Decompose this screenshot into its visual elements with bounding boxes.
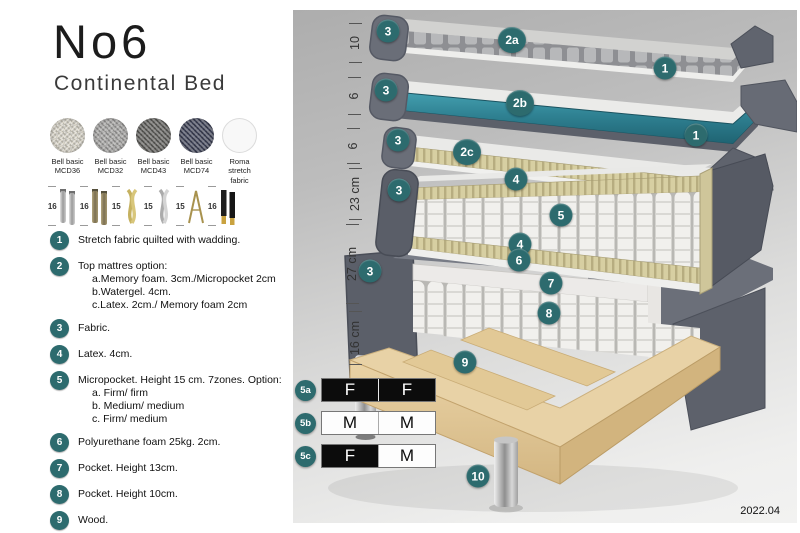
revision-date: 2022.04: [740, 505, 780, 517]
diagram-badge: 1: [685, 124, 708, 147]
legend-item: 5 Micropocket. Height 15 cm. 7zones. Opt…: [50, 371, 288, 426]
legend-badge: 5: [50, 371, 69, 390]
fabric-swatch-icon: [93, 118, 128, 153]
legend-item: 6 Polyurethane foam 25kg. 2cm.: [50, 433, 288, 452]
firmness-row: 5c F M: [295, 444, 436, 468]
firmness-badge: 5a: [295, 380, 316, 401]
legend: 1 Stretch fabric quilted with wadding. 2…: [50, 231, 288, 533]
diagram-badge: 6: [508, 249, 531, 272]
legend-badge: 8: [50, 485, 69, 504]
diagram-badge: 2a: [498, 27, 526, 53]
layer-top-pad: [368, 14, 773, 82]
firmness-badge: 5c: [295, 446, 316, 467]
exploded-diagram-panel: 10 6 6 23 cm 27 cm 16 cm 3 2a 1 3 2b 1 3…: [293, 10, 797, 523]
firmness-cell: F: [322, 445, 378, 467]
fabric-swatch-icon: [222, 118, 257, 153]
diagram-badge: 3: [375, 79, 398, 102]
cylinder-silver-leg-icon: [58, 186, 77, 226]
fabric-swatch: Bell basicMCD43: [135, 118, 172, 185]
black-gold-leg-icon: [218, 186, 237, 226]
diagram-badge: 3: [388, 179, 411, 202]
legend-item: 4 Latex. 4cm.: [50, 345, 288, 364]
diagram-badge: 9: [454, 351, 477, 374]
legend-item: 8 Pocket. Height 10cm.: [50, 485, 288, 504]
twisted-silver-leg-icon: [154, 186, 173, 226]
legend-badge: 4: [50, 345, 69, 364]
dimension-label: 23 cm: [348, 168, 362, 220]
metal-leg-front: [489, 437, 523, 513]
fabric-swatch-icon: [50, 118, 85, 153]
legend-badge: 7: [50, 459, 69, 478]
legend-badge: 1: [50, 231, 69, 250]
firmness-cell: M: [378, 445, 435, 467]
leg-option: 16: [207, 184, 237, 228]
legend-item: 3 Fabric.: [50, 319, 288, 338]
leg-option: 15: [143, 184, 173, 228]
fabric-swatch: Romastretch fabric: [221, 118, 258, 185]
leg-options: 16 16 15 15: [47, 184, 237, 228]
leg-option: 16: [79, 184, 109, 228]
fabric-swatch: Bell basicMCD32: [92, 118, 129, 185]
diagram-badge: 3: [377, 20, 400, 43]
cylinder-bronze-leg-icon: [90, 186, 109, 226]
legend-badge: 2: [50, 257, 69, 276]
firmness-cell: F: [322, 379, 378, 401]
legend-badge: 6: [50, 433, 69, 452]
firmness-cell: F: [378, 379, 435, 401]
fabric-swatch-icon: [179, 118, 214, 153]
leg-option: 15: [175, 184, 205, 228]
legend-item: 2 Top mattres option: a.Memory foam. 3cm…: [50, 257, 288, 312]
diagram-badge: 3: [387, 129, 410, 152]
legend-item: 1 Stretch fabric quilted with wadding.: [50, 231, 288, 250]
dimension-label: 6: [347, 77, 361, 115]
diagram-badge: 7: [540, 272, 563, 295]
firmness-cell: M: [322, 412, 378, 434]
fabric-swatch-icon: [136, 118, 171, 153]
firmness-cell: M: [378, 412, 435, 434]
leg-option: 16: [47, 184, 77, 228]
fabric-swatch: Bell basicMCD36: [49, 118, 86, 185]
firmness-badge: 5b: [295, 413, 316, 434]
twisted-gold-leg-icon: [122, 186, 141, 226]
leg-option: 15: [111, 184, 141, 228]
fabric-swatch: Bell basicMCD74: [178, 118, 215, 185]
dimension-label: 10: [348, 23, 362, 63]
page-title: No6: [53, 14, 151, 69]
diagram-badge: 5: [550, 204, 573, 227]
bed-spec-sheet: No6 Continental Bed Bell basicMCD36 Bell…: [0, 0, 800, 533]
legend-badge: 3: [50, 319, 69, 338]
dimension-label: 6: [346, 128, 360, 164]
firmness-row: 5a F F: [295, 378, 436, 402]
diagram-badge: 8: [538, 302, 561, 325]
diagram-badge: 4: [505, 168, 528, 191]
diagram-badge: 1: [654, 57, 677, 80]
diagram-badge: 2c: [453, 139, 481, 165]
legend-item: 7 Pocket. Height 13cm.: [50, 459, 288, 478]
diagram-badge: 10: [467, 465, 490, 488]
legend-badge: 9: [50, 511, 69, 530]
dimension-label: 16 cm: [348, 311, 362, 365]
page-subtitle: Continental Bed: [54, 72, 226, 96]
legend-item: 9 Wood.: [50, 511, 288, 530]
diagram-badge: 3: [359, 260, 382, 283]
fabric-swatches: Bell basicMCD36 Bell basicMCD32 Bell bas…: [49, 118, 258, 185]
hairpin-gold-leg-icon: [186, 186, 205, 226]
firmness-row: 5b M M: [295, 411, 436, 435]
dimension-label: 27 cm: [345, 224, 359, 304]
diagram-badge: 2b: [506, 90, 534, 116]
